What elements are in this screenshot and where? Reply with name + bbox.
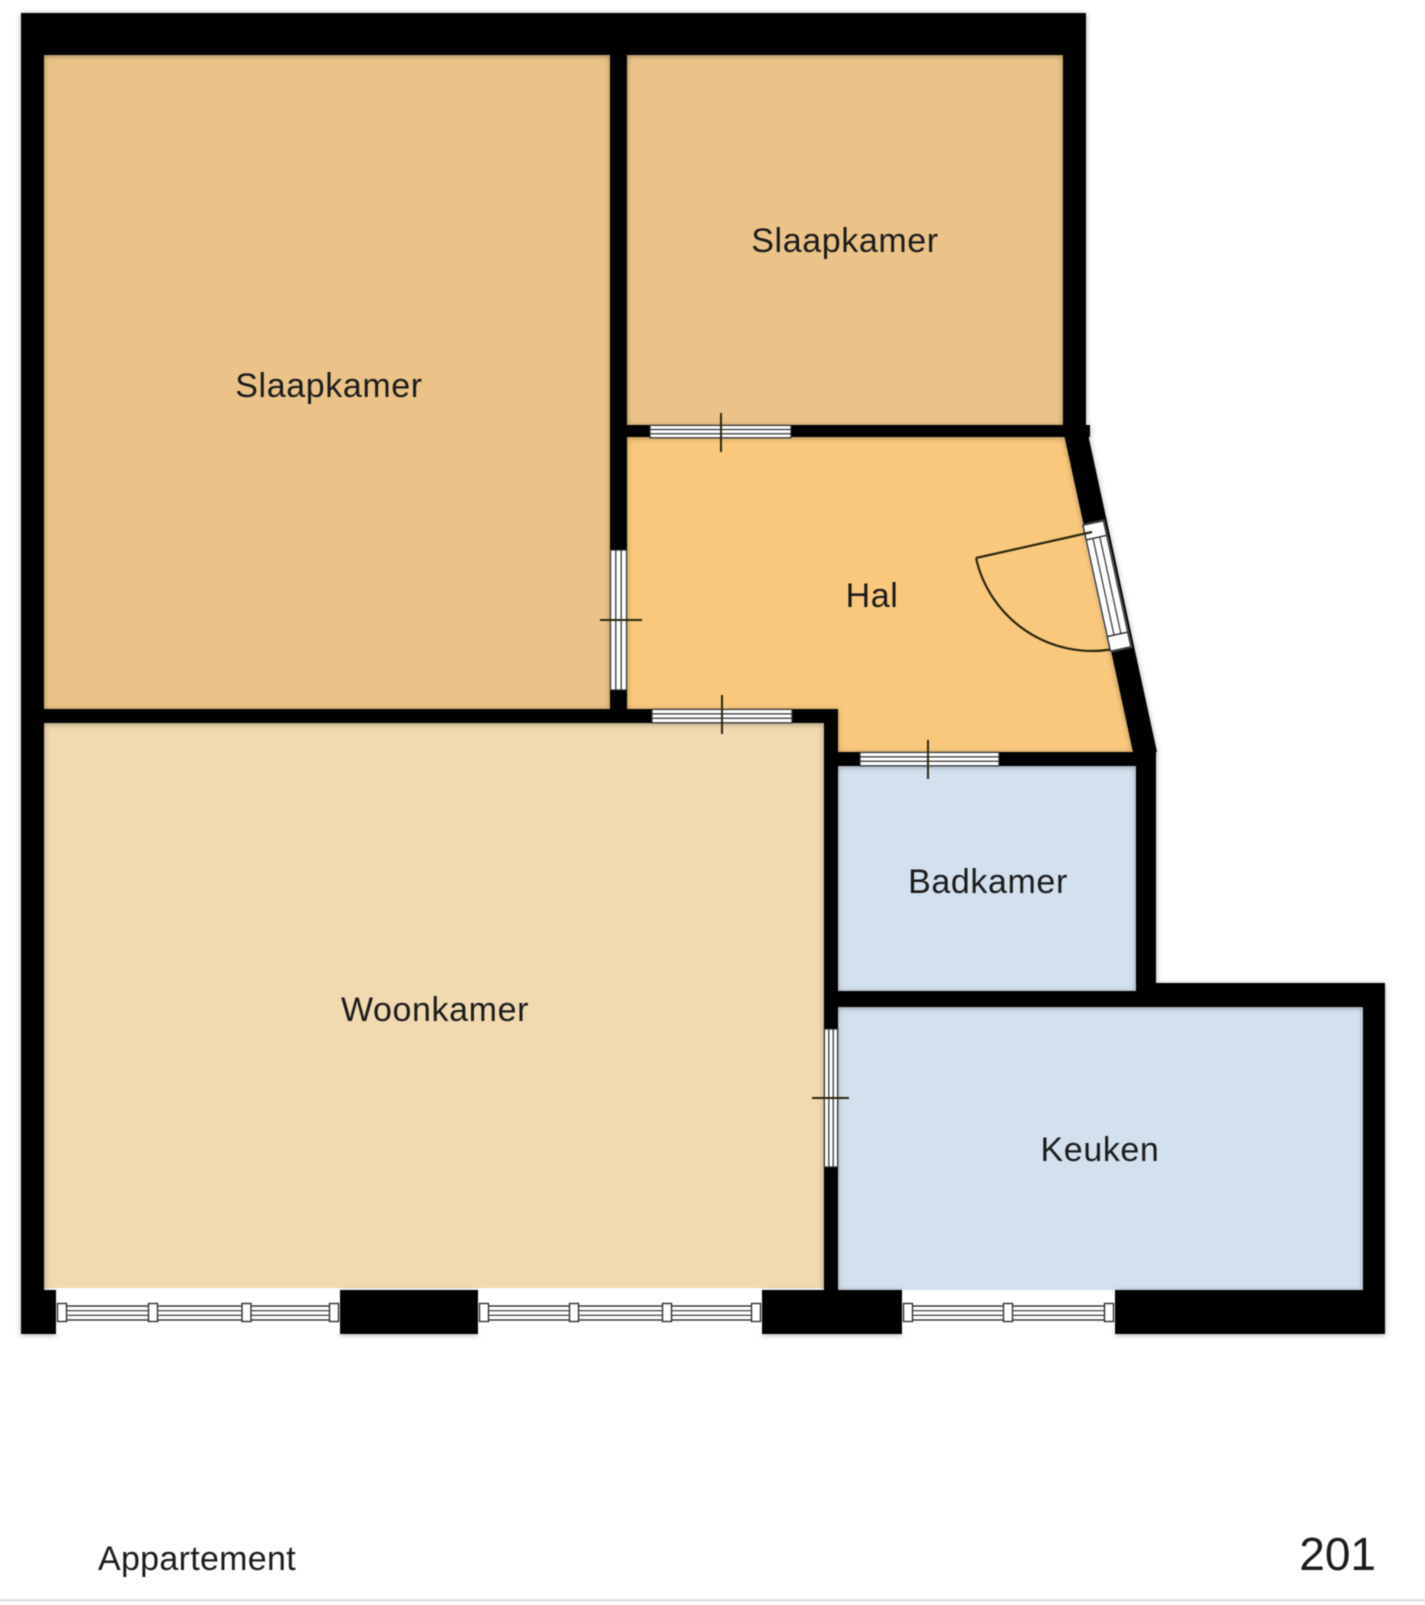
svg-text:Slaapkamer: Slaapkamer [751,222,938,260]
svg-text:201: 201 [1299,1528,1376,1580]
svg-text:Hal: Hal [846,577,899,615]
svg-text:Appartement: Appartement [98,1540,296,1578]
svg-text:Keuken: Keuken [1041,1131,1160,1169]
svg-text:Slaapkamer: Slaapkamer [235,367,422,405]
svg-text:Woonkamer: Woonkamer [341,991,529,1029]
svg-text:Badkamer: Badkamer [908,863,1068,901]
